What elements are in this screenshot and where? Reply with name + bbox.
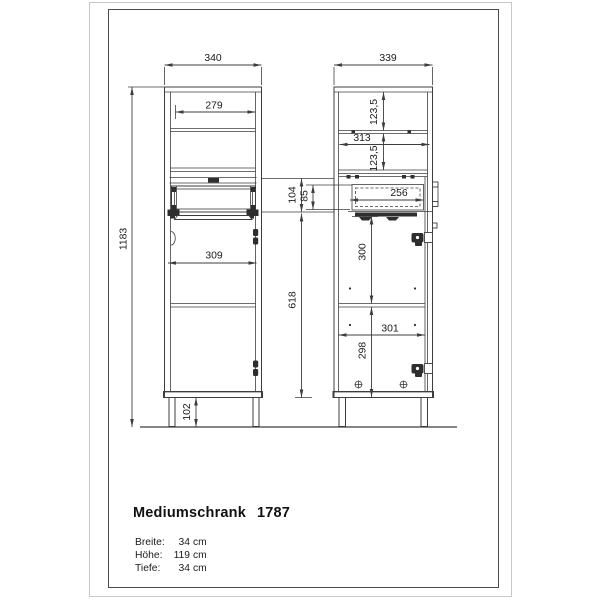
dimensions-side: 339 123,5 313 123,5 104 85 256 618 300	[262, 53, 433, 398]
spec-height: Höhe:119cm	[135, 549, 207, 562]
side-leg-right	[421, 398, 428, 427]
dim-total-height: 1183	[119, 228, 130, 251]
hinge-lower	[412, 364, 433, 378]
door-handle	[171, 232, 176, 246]
dim-shelf-lower: 123,5	[369, 145, 380, 171]
dim-shelf-width: 279	[205, 101, 223, 112]
technical-drawing-page: 340 279 1183 309 102 339 123,5 313 123,5	[0, 0, 600, 600]
drawer-front-view	[168, 186, 259, 220]
title-block: Mediumschrank1787	[133, 505, 290, 521]
dim-drawer-depth: 256	[390, 188, 408, 199]
hinge-mark-lower	[253, 361, 258, 368]
dim-door-upper: 300	[358, 243, 369, 261]
dim-door-lower: 298	[358, 342, 369, 360]
drawer-front-clip	[433, 182, 439, 187]
dim-drawer-zone: 104	[288, 186, 299, 204]
dim-lower-height: 618	[288, 291, 299, 309]
drawer-slide-right	[247, 210, 259, 217]
product-title: Mediumschrank1787	[133, 505, 290, 521]
front-leg-left	[169, 398, 175, 427]
dim-front-width: 340	[204, 53, 222, 64]
dim-door-width: 309	[205, 251, 223, 262]
hinge-mark-upper	[253, 229, 258, 236]
product-model: 1787	[257, 505, 290, 521]
drawer-stop-clip	[208, 178, 219, 183]
spec-depth: Tiefe:34cm	[135, 562, 207, 575]
side-view	[333, 87, 438, 427]
dim-drawer-front: 85	[300, 190, 311, 202]
dim-leg-height: 102	[182, 403, 193, 421]
screw-symbols	[355, 381, 408, 389]
hinge-upper	[412, 223, 438, 246]
spec-list: Breite:34cm Höhe:119cm Tiefe:34cm	[135, 536, 207, 576]
dim-depth: 339	[379, 53, 397, 64]
dim-lower-inner: 301	[381, 324, 399, 335]
dimensions-front: 340 279 1183 309 102	[119, 53, 262, 427]
dim-inner-depth: 313	[353, 133, 371, 144]
side-leg-left	[339, 398, 346, 427]
cabinet-technical-drawing: 340 279 1183 309 102 339 123,5 313 123,5	[0, 0, 600, 600]
dim-shelf-upper: 123,5	[369, 99, 380, 125]
spec-width: Breite:34cm	[135, 536, 207, 549]
product-name: Mediumschrank	[133, 505, 246, 521]
drawer-slide-left	[168, 210, 180, 217]
front-leg-right	[253, 398, 259, 427]
